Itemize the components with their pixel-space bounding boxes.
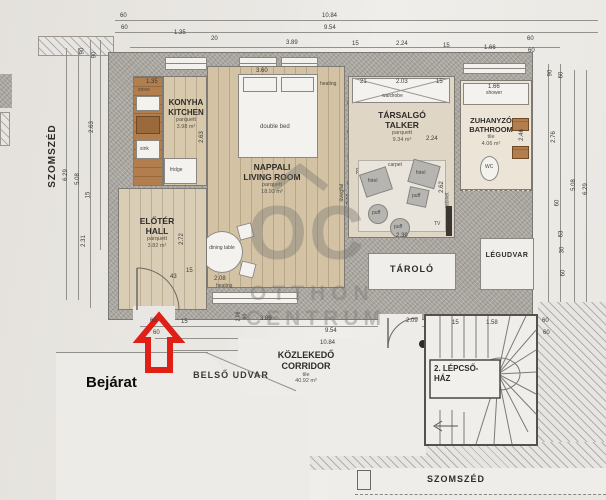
dim-label: 10.84 — [320, 340, 335, 346]
dim-label: 15 — [181, 319, 188, 325]
dim-label: 5.08 — [571, 179, 577, 191]
entrance-label: Bejárat — [86, 374, 156, 392]
dim-label: 15 — [452, 320, 459, 326]
dim-label: 1.58 — [486, 320, 498, 326]
dim-label: 2.08 — [236, 312, 241, 322]
dim-label: 60 — [150, 318, 157, 324]
dim-label: 3.89 — [260, 316, 272, 322]
door-symbol — [357, 470, 371, 490]
floor-plan: stove sink fridge KONYHA KITCHEN parquet… — [0, 0, 606, 500]
dim-label: 2.76 — [551, 131, 557, 143]
dim-label: 2.63 — [89, 121, 95, 133]
watermark-roof-icon — [270, 164, 334, 190]
dim-label: 60 — [558, 72, 564, 79]
dim-label: 15 — [443, 43, 450, 49]
dim-label: 60 — [121, 25, 128, 31]
dim-label: 90 — [547, 70, 553, 77]
dim-label: 90 — [91, 52, 97, 59]
dim-label: 1.35 — [174, 30, 186, 36]
dim-label: 9.54 — [324, 25, 336, 31]
entrance-arrow-icon — [134, 312, 184, 374]
dim-label: 60 — [560, 270, 566, 277]
dim-label: 9.54 — [325, 328, 337, 334]
dim-label: 60 — [554, 200, 560, 207]
dim-label: 63 — [558, 231, 564, 238]
dim-label: 60 — [153, 330, 160, 336]
dim-label: 3.89 — [286, 40, 298, 46]
dim-label: 60 — [527, 36, 534, 42]
watermark-line1: OTTHON — [250, 283, 375, 304]
dim-label: 1.66 — [484, 45, 496, 51]
dim-label: 6.29 — [63, 169, 69, 181]
dim-label: 2.09 — [406, 318, 418, 324]
dim-label: 6.29 — [583, 183, 589, 195]
dim-label: 60 — [542, 318, 549, 324]
dim-label: 90 — [79, 48, 85, 55]
dim-label: 90 — [243, 314, 248, 320]
dim-label: 10.84 — [322, 13, 337, 19]
dim-label: 30 — [559, 247, 565, 254]
neighbor-bottom-label: SZOMSZÉD — [408, 474, 504, 485]
watermark-logo: OC — [248, 196, 366, 272]
dim-label: 60 — [543, 330, 550, 336]
dim-label: 2.31 — [81, 235, 87, 247]
dim-label: 60 — [120, 13, 127, 19]
dim-label: 15 — [85, 192, 91, 199]
inner-courtyard-label: BELSŐ UDVAR — [192, 370, 270, 381]
dim-label: 15 — [352, 41, 359, 47]
staircase-label: 2. LÉPCSŐ- HÁZ — [434, 364, 490, 383]
dim-label: 60 — [528, 48, 535, 54]
neighbor-left-label: SZOMSZÉD — [47, 123, 59, 189]
dim-label: 5.08 — [75, 173, 81, 185]
dim-label: 2.24 — [396, 41, 408, 47]
dim-label: 20 — [211, 36, 218, 42]
